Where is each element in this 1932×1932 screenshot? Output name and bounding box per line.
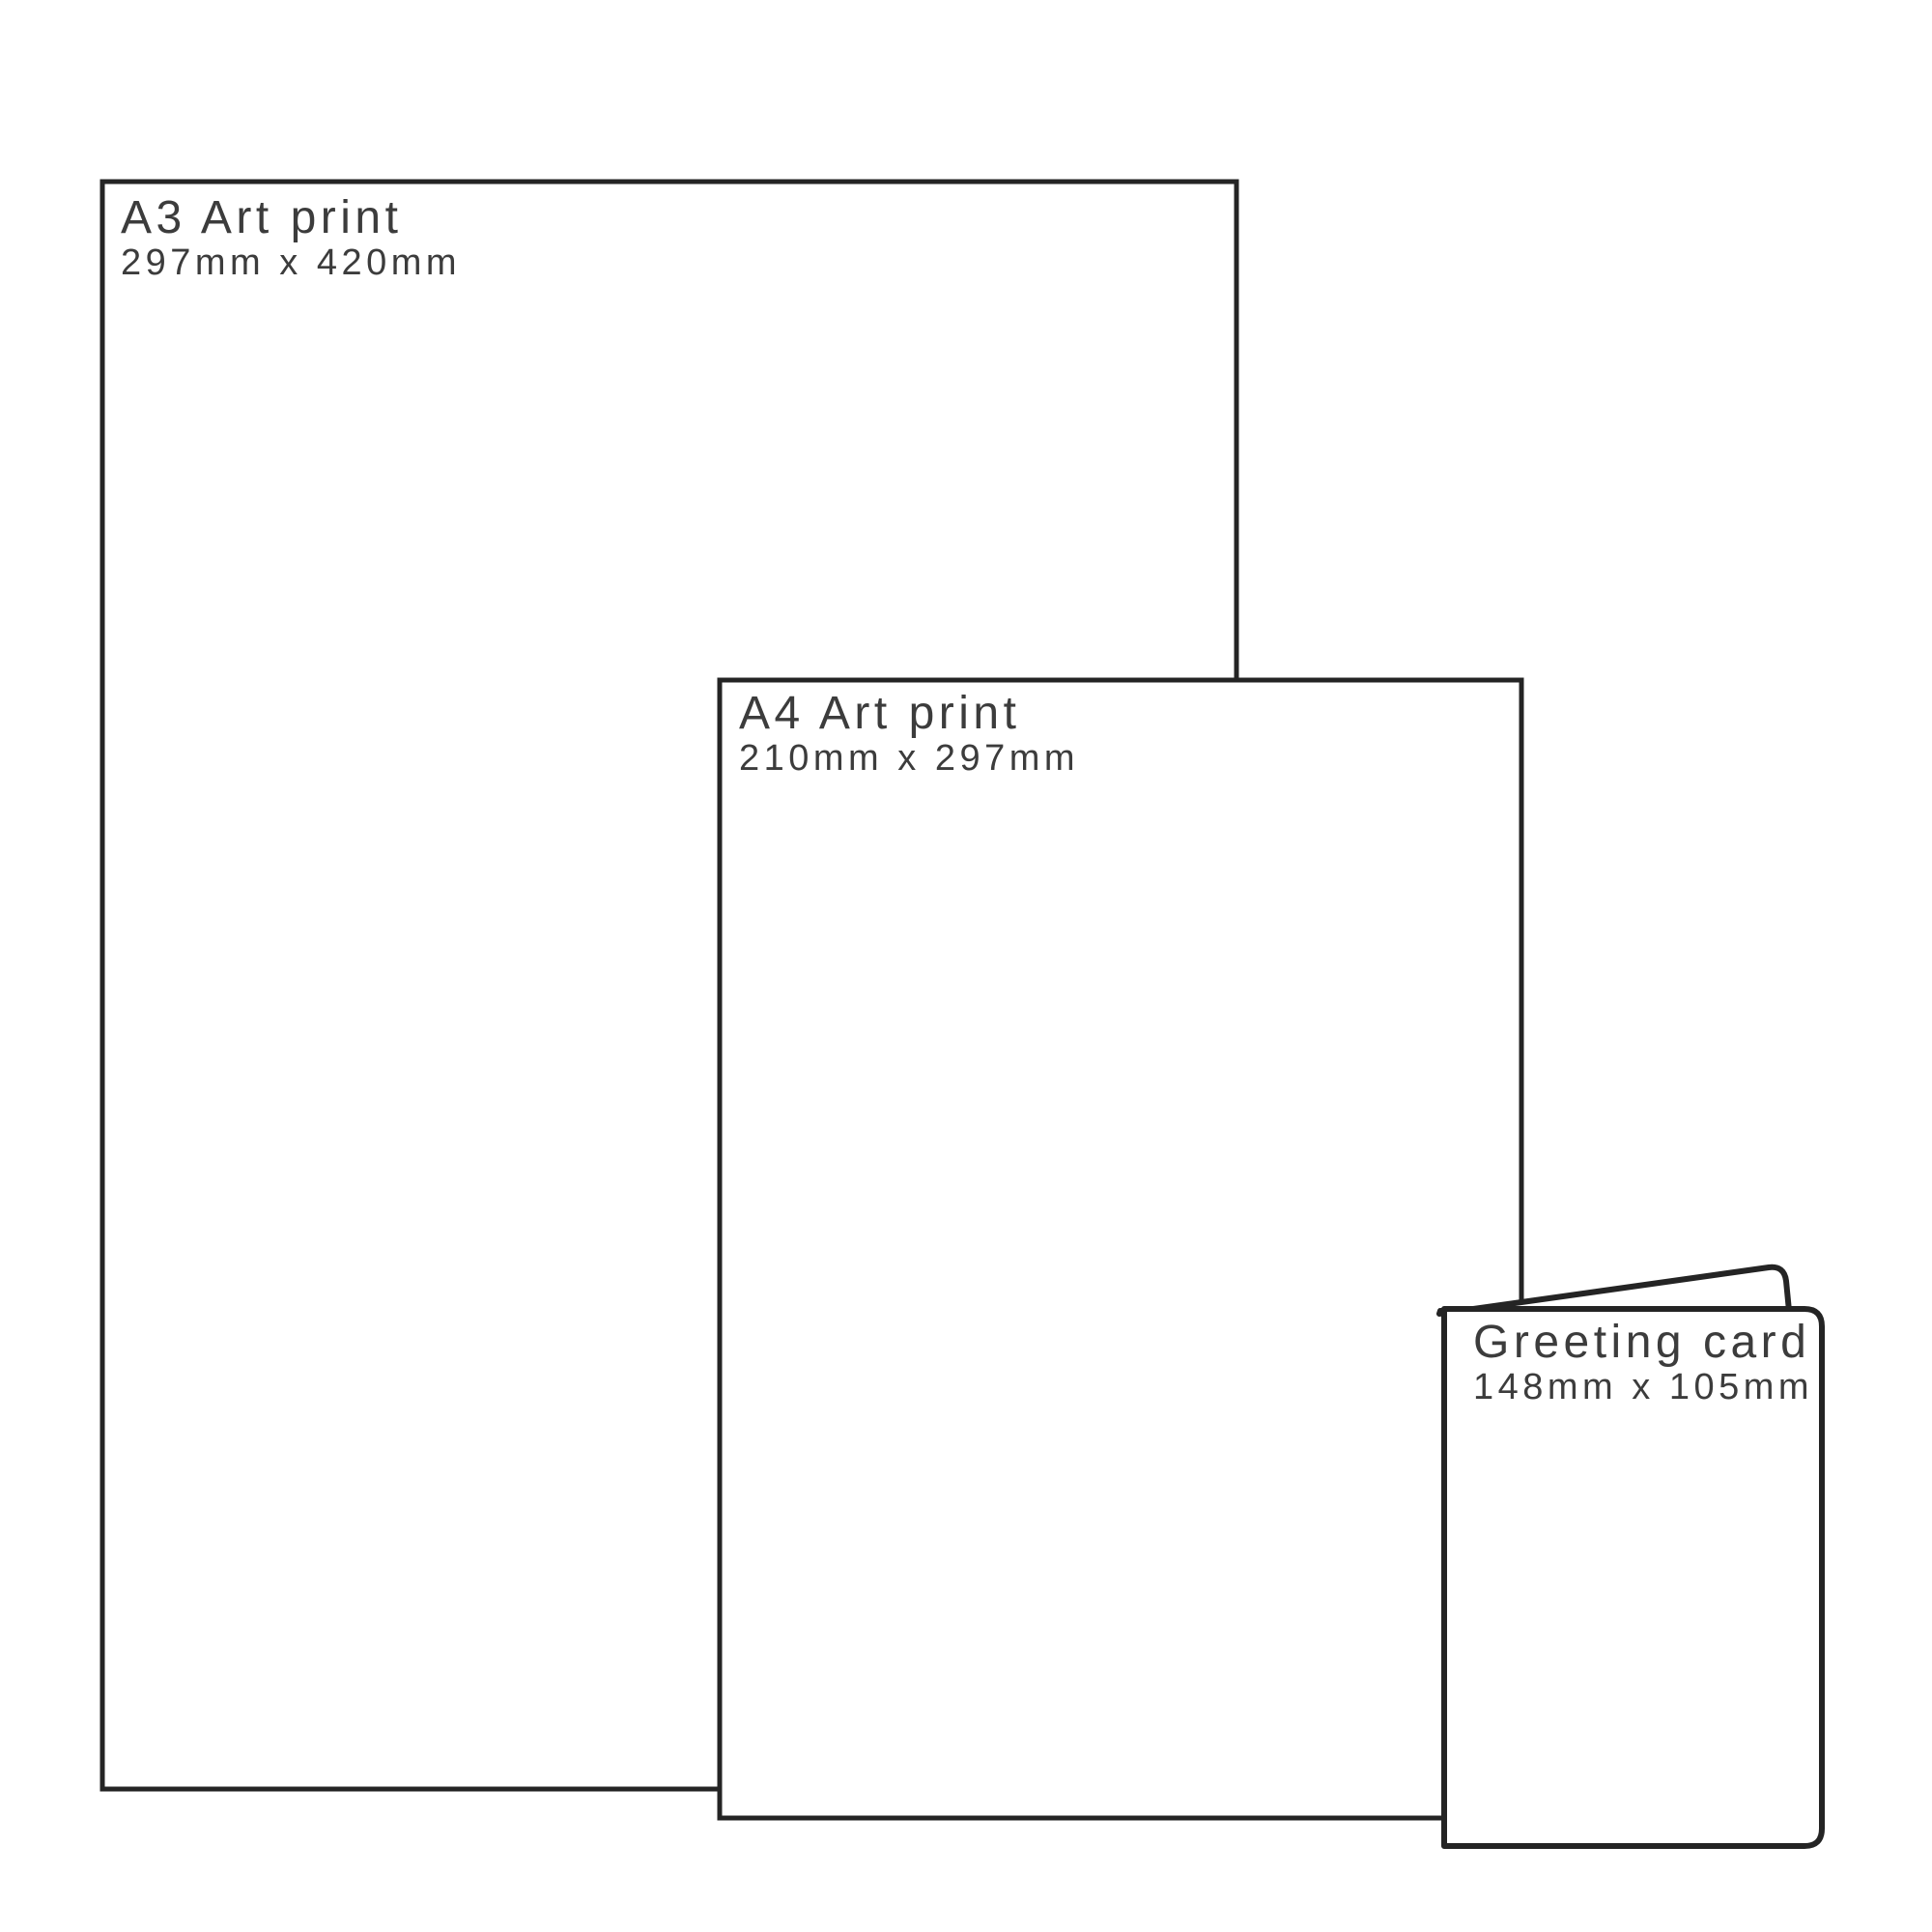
a4-label: A4 Art print 210mm x 297mm — [739, 690, 1079, 779]
greeting-card-label: Greeting card 148mm x 105mm — [1473, 1319, 1813, 1407]
size-diagram-canvas — [0, 0, 1932, 1932]
a3-dimensions: 297mm x 420mm — [121, 242, 461, 283]
a4-title: A4 Art print — [739, 690, 1079, 738]
a3-label: A3 Art print 297mm x 420mm — [121, 194, 461, 283]
print-size-comparison: A3 Art print 297mm x 420mm A4 Art print … — [0, 0, 1932, 1932]
a4-dimensions: 210mm x 297mm — [739, 738, 1079, 779]
greeting-card-title: Greeting card — [1473, 1319, 1813, 1367]
greeting-card-dimensions: 148mm x 105mm — [1473, 1367, 1813, 1407]
a3-title: A3 Art print — [121, 194, 461, 242]
a4-sheet-outline — [720, 680, 1521, 1818]
